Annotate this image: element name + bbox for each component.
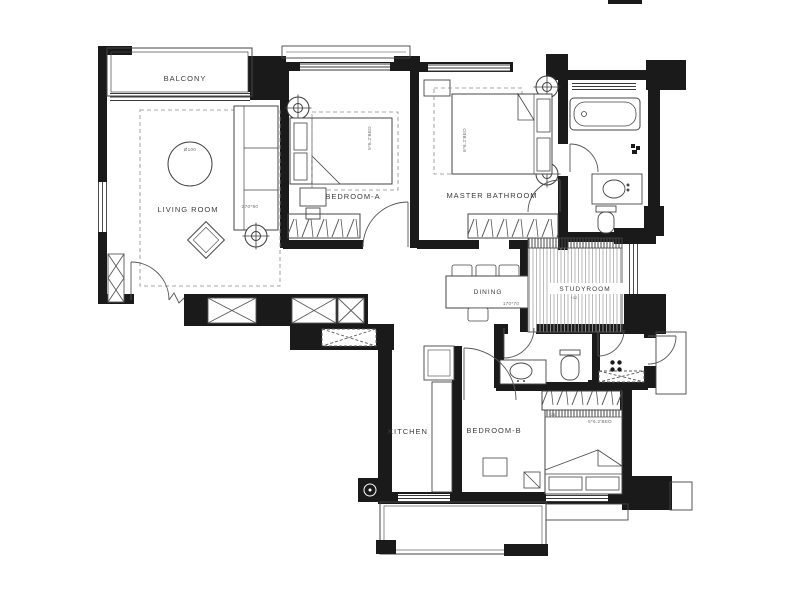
master-bed — [452, 94, 552, 174]
window-left-wall — [95, 182, 110, 232]
exterior-door — [648, 336, 676, 364]
bedroom-a — [285, 95, 399, 239]
studyroom — [528, 238, 624, 332]
dining-chair — [452, 265, 472, 277]
bathroom-2-door — [504, 328, 534, 358]
bedroom-a-label: BEDROOM-A — [325, 192, 380, 201]
bathroom-sink — [592, 174, 642, 204]
studyroom-level-label: +12 — [571, 295, 579, 300]
bedroom-b — [483, 391, 622, 494]
dining-chair — [499, 265, 519, 277]
hall-cabinet-2 — [292, 298, 336, 323]
ledge-bedroom-a — [282, 46, 410, 58]
master-bed-dim-label: 6*6.2'BED — [462, 128, 467, 152]
bedside-table-b — [524, 472, 540, 488]
rug-dim-label: Ø100 — [184, 147, 197, 152]
kitchen — [424, 346, 454, 492]
bedroom-b-level-label: +25 — [549, 412, 557, 417]
studyroom-sliding-door — [528, 238, 622, 248]
window-kitchen — [398, 494, 450, 502]
utility-room — [610, 360, 621, 371]
master-bedroom-label: MASTER BATHROOM — [446, 191, 537, 200]
bathroom-master — [570, 98, 642, 233]
table-b — [483, 458, 507, 476]
hall-cabinet-4 — [322, 329, 376, 346]
master-bedroom — [424, 74, 561, 239]
bed-a — [290, 118, 392, 184]
bath2-sink — [510, 363, 532, 379]
hall-cabinet-3 — [338, 298, 364, 323]
closet-a — [288, 214, 360, 238]
toilet2-tank — [560, 350, 580, 355]
sofa — [234, 106, 278, 230]
bedroom-a-door — [363, 202, 408, 247]
closet-b — [542, 391, 622, 410]
living-room-label: LIVING ROOM — [157, 205, 218, 214]
studyroom-label: STUDYROOM — [559, 286, 610, 293]
floor-drain-icon — [610, 360, 621, 371]
toilet-master — [596, 206, 616, 233]
ledge-utility — [656, 332, 686, 394]
floorplan-canvas: BALCONY LIVING ROOM Ø100 270*90 BEDROOM-… — [0, 0, 800, 600]
entry-cabinet — [108, 254, 124, 302]
window-bedroom-b — [546, 494, 608, 502]
sofa-dim-label: 270*90 — [242, 204, 259, 209]
dining-chair — [476, 265, 496, 277]
window-balcony-door — [110, 92, 250, 102]
master-closet — [468, 214, 558, 238]
bed-a-dim-label: 5*6.2'BED — [367, 126, 372, 150]
master-bathroom-door — [570, 144, 598, 172]
dining-table-dim-label: 170*70 — [503, 301, 520, 306]
utility-cabinet — [599, 371, 644, 382]
washer-valve-icon — [631, 144, 640, 154]
dining-chair — [468, 308, 488, 321]
bedroom-b-label: BEDROOM-B — [466, 426, 521, 435]
fridge-inner — [428, 350, 450, 376]
kitchen-label: KITCHEN — [388, 427, 428, 436]
toilet2-bowl — [561, 356, 579, 380]
bathtub — [570, 98, 640, 130]
kitchen-counter — [432, 382, 452, 492]
balcony-label: BALCONY — [164, 74, 207, 83]
window-bedroom-a — [300, 63, 390, 71]
accent-chair — [188, 222, 225, 259]
entry-door — [131, 262, 184, 303]
window-master-bedroom — [428, 64, 510, 71]
window-bathroom-tub — [572, 82, 636, 90]
living-room — [140, 106, 280, 286]
floorplan-drawing: BALCONY LIVING ROOM Ø100 270*90 BEDROOM-… — [0, 0, 800, 600]
hall-cabinet-1 — [208, 298, 256, 323]
dining-label: DINING — [474, 289, 503, 296]
balcony-top — [107, 48, 252, 96]
window-studyroom — [627, 244, 640, 294]
bed-b-dim-label: 5*6.2'BED — [588, 419, 612, 424]
